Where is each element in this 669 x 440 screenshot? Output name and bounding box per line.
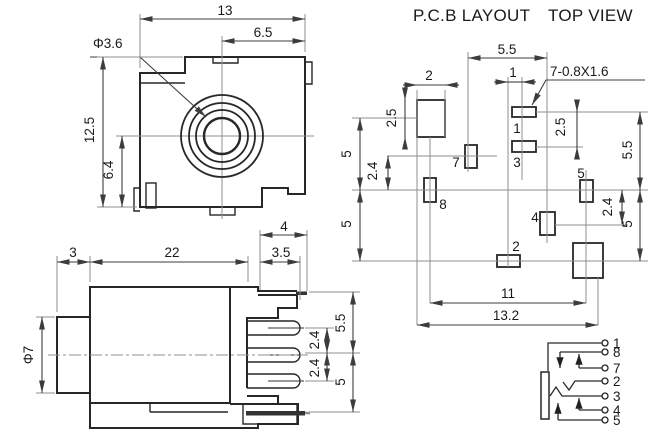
front-right-tab (305, 62, 312, 84)
side-view: 3 22 4 3.5 Φ7 5.5 5 2.4 2. (21, 219, 360, 428)
dim-13-label: 13 (217, 3, 232, 18)
dim-5-5-side-label: 5.5 (333, 314, 348, 333)
dim-12-5-label: 12.5 (82, 117, 97, 143)
terminal-2-label: 2 (613, 374, 621, 389)
dim-2-4-left-label: 2.4 (365, 161, 380, 180)
pad-5-number: 5 (577, 166, 585, 181)
pin-housing (230, 287, 297, 404)
dim-phi7-label: Φ7 (21, 346, 36, 364)
dim-2-4a-label: 2.4 (307, 330, 322, 349)
schematic-terminals: 1 8 7 2 3 4 5 (602, 336, 621, 428)
bottom-pin (246, 411, 305, 416)
terminal-2-circle (602, 378, 608, 384)
dim-22-label: 22 (164, 245, 179, 260)
front-slot (146, 183, 156, 208)
dim-6-5-label: 6.5 (254, 25, 273, 40)
dim-5-5-top-label: 5.5 (498, 42, 517, 57)
terminal-1-circle (602, 340, 608, 346)
pad-4-number: 4 (531, 210, 539, 225)
front-view-dimensions: 13 6.5 Φ3.6 12.5 6.4 (82, 3, 305, 207)
terminal-3-circle (602, 393, 608, 399)
pad-8-number: 8 (439, 197, 447, 212)
terminal-5-circle (602, 417, 608, 423)
dim-2-label: 2 (425, 68, 433, 83)
pcb-dimensions: 5.5 2 1 7-0.8X1.6 2.5 2.5 5.5 5 2. (339, 42, 645, 325)
pcb-reference-lines (352, 52, 648, 325)
dim-3-5-label: 3.5 (272, 245, 291, 260)
dim-2-5-left-label: 2.5 (384, 109, 399, 128)
terminal-4-circle (602, 407, 608, 413)
top-pin (296, 292, 307, 296)
dim-hole-label: Φ3.6 (93, 36, 123, 51)
side-view-dimensions: 3 22 4 3.5 Φ7 5.5 5 2.4 2. (21, 219, 360, 412)
pad-2-number: 2 (512, 239, 520, 254)
dim-2-4-right-label: 2.4 (600, 197, 615, 216)
hole-spec-note: 7-0.8X1.6 (550, 64, 609, 79)
dim-5-side-label: 5 (333, 378, 348, 386)
dim-1-label: 1 (509, 65, 517, 80)
pcb-layout-view: P.C.B LAYOUT TOP VIEW (339, 6, 648, 325)
dim-2-4b-label: 2.4 (307, 358, 322, 377)
pad-3-number: 3 (513, 155, 521, 170)
dim-5-5-right-label: 5.5 (620, 141, 635, 160)
pad-7-number: 7 (452, 155, 460, 170)
terminal-7-circle (602, 365, 608, 371)
pad-3 (512, 141, 536, 152)
pcb-layout-title: P.C.B LAYOUT (413, 6, 530, 25)
terminal-5-label: 5 (613, 413, 621, 428)
hole-leader-line (90, 57, 206, 117)
dim-2-5-right-label: 2.5 (553, 118, 568, 137)
dim-4-label: 4 (280, 219, 288, 234)
dim-13-2-label: 13.2 (493, 308, 519, 323)
side-body (90, 287, 230, 403)
schematic-wires (548, 343, 602, 420)
pad-1 (512, 107, 536, 117)
engineering-drawing: 13 6.5 Φ3.6 12.5 6.4 (0, 0, 669, 440)
schematic: 1 8 7 2 3 4 5 (541, 336, 621, 428)
dim-5-left-upper-label: 5 (339, 150, 354, 158)
pad-1-number: 1 (513, 121, 521, 136)
dim-6-4-label: 6.4 (101, 160, 116, 179)
drawing-canvas: 13 6.5 Φ3.6 12.5 6.4 (0, 0, 669, 440)
terminal-8-circle (602, 349, 608, 355)
dim-3-label: 3 (69, 245, 77, 260)
terminal-8-label: 8 (613, 345, 621, 360)
front-view: 13 6.5 Φ3.6 12.5 6.4 (82, 3, 314, 219)
dim-5-left-lower-label: 5 (339, 220, 354, 228)
mount-pad-left (417, 100, 445, 137)
hole-spec-leader (532, 80, 645, 105)
top-view-title: TOP VIEW (548, 6, 633, 25)
terminal-3-label: 3 (613, 389, 621, 404)
dim-11-label: 11 (501, 286, 515, 301)
sleeve-bar (541, 372, 549, 419)
